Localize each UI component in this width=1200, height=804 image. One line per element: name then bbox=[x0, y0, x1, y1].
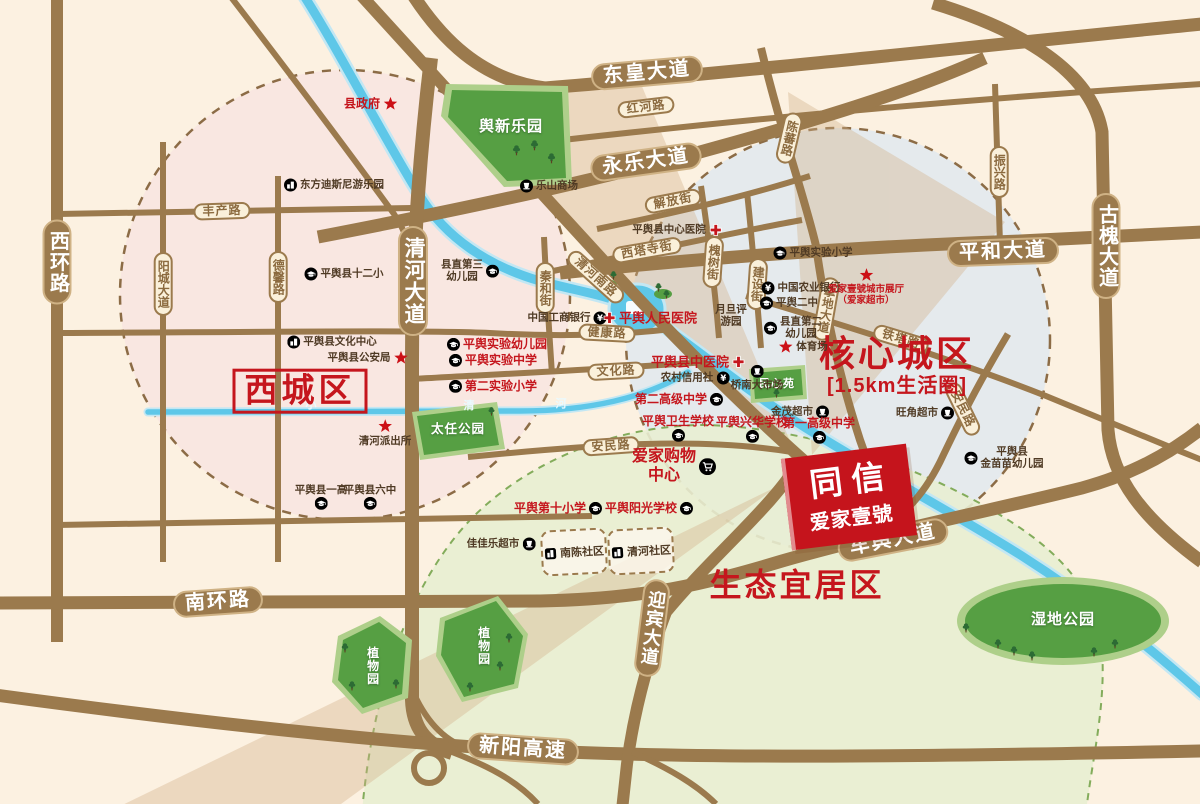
poi-label: 县政府 bbox=[344, 97, 380, 111]
park-label: 植物园 bbox=[365, 647, 378, 686]
map-poi: 平舆兴华学校 bbox=[716, 415, 788, 443]
district-subtitle: [1.5km生活圈] bbox=[819, 376, 975, 397]
road-label-minor: 振兴路 bbox=[990, 146, 1009, 198]
poi-label: 平舆二中 bbox=[776, 297, 818, 309]
project-block: 同信 爱家壹號 bbox=[781, 444, 917, 551]
home-icon bbox=[611, 545, 625, 559]
map-poi: 县政府 bbox=[344, 97, 398, 112]
map-poi: 平舆县中心医院 bbox=[632, 224, 722, 237]
district-label: 核心城区[1.5km生活圈] bbox=[819, 335, 975, 397]
map-base-layer: ¥ bbox=[0, 0, 1200, 804]
road-label-minor: 秦和街 bbox=[536, 262, 555, 314]
poi-label: 平舆县六中 bbox=[344, 484, 397, 496]
map-poi: 平舆人民医院 bbox=[603, 310, 697, 325]
map-poi: 县直第三 幼儿园 bbox=[441, 259, 499, 284]
poi-label: 平舆县中心医院 bbox=[632, 224, 706, 236]
map-poi: 第二高级中学 bbox=[635, 392, 723, 406]
star-icon bbox=[383, 97, 398, 112]
cup-icon bbox=[751, 365, 764, 378]
poi-label: 东方迪斯尼游乐园 bbox=[300, 179, 384, 191]
poi-label: 第二高级中学 bbox=[635, 392, 707, 406]
map-poi: 爱家壹號城市展厅 （爱家超市） bbox=[828, 268, 904, 306]
road-label-minor: 健康路 bbox=[578, 323, 636, 343]
park-label: 植物园 bbox=[476, 627, 489, 666]
poi-label: 爱家壹號城市展厅 （爱家超市） bbox=[828, 284, 904, 306]
map-poi: 农村信用社 bbox=[661, 372, 730, 385]
river-name-char: 清 bbox=[464, 397, 475, 413]
home-icon bbox=[544, 546, 558, 560]
map-poi: 月旦评 游园 bbox=[715, 304, 747, 329]
cap-icon bbox=[812, 431, 825, 444]
poi-label: 平舆县一高 bbox=[295, 484, 348, 496]
road-label-major: 西环路 bbox=[43, 220, 72, 305]
poi-label: 平舆实验中学 bbox=[465, 353, 537, 367]
cap-icon bbox=[710, 393, 723, 406]
poi-label: 爱家购物 中心 bbox=[632, 448, 696, 486]
cap-icon bbox=[774, 247, 787, 260]
map-poi: 第二实验小学 bbox=[449, 379, 537, 393]
map-poi: 平舆县一高 bbox=[295, 484, 348, 510]
community-label: 清河社区 bbox=[627, 541, 672, 559]
map-poi: 旺角超市 bbox=[896, 407, 954, 420]
cross-icon bbox=[603, 311, 616, 324]
map-poi: 佳佳乐超市 bbox=[467, 538, 536, 551]
cap-icon bbox=[745, 430, 758, 443]
poi-label: 体育场 bbox=[796, 341, 828, 353]
project-name-line2: 爱家壹號 bbox=[808, 496, 895, 535]
cap-icon bbox=[486, 265, 499, 278]
road-label-minor: 阳城大道 bbox=[154, 252, 173, 316]
poi-label: 平舆县十二小 bbox=[321, 268, 384, 280]
river-name-char: 河 bbox=[556, 395, 567, 411]
cap-icon bbox=[760, 297, 773, 310]
map-poi: 平舆县文化中心 bbox=[287, 336, 377, 349]
map-poi: 平舆县六中 bbox=[344, 484, 397, 510]
cap-icon bbox=[680, 502, 693, 515]
yuan-icon bbox=[762, 282, 775, 295]
poi-label: 中国工商银行 bbox=[528, 312, 591, 324]
star-icon bbox=[394, 351, 409, 366]
cap-icon bbox=[447, 338, 460, 351]
poi-label: 农村信用社 bbox=[661, 372, 714, 384]
cap-icon bbox=[764, 322, 777, 335]
map-poi: 东方迪斯尼游乐园 bbox=[284, 179, 384, 192]
cup-icon bbox=[941, 407, 954, 420]
bld-icon bbox=[284, 179, 297, 192]
map-poi: 平舆实验幼儿园 bbox=[447, 337, 547, 351]
poi-label: 平舆兴华学校 bbox=[716, 415, 788, 429]
map-poi: 平舆县十二小 bbox=[305, 268, 384, 281]
map-poi: 平舆县公安局 bbox=[328, 351, 409, 366]
poi-label: 第一高级中学 bbox=[783, 416, 855, 430]
map-poi: 爱家购物 中心 bbox=[632, 448, 716, 486]
map-poi: 平舆实验中学 bbox=[449, 353, 537, 367]
poi-label: 佳佳乐超市 bbox=[467, 538, 520, 550]
road-label-minor: 槐树街 bbox=[702, 235, 724, 288]
map-poi: 中国工商银行 bbox=[528, 312, 607, 325]
poi-label: 县直第二 幼儿园 bbox=[780, 316, 822, 341]
map-poi: 体育场 bbox=[778, 340, 828, 355]
map-poi: 平舆二中 bbox=[760, 297, 818, 310]
poi-label: 平舆县 金苗苗幼儿园 bbox=[981, 446, 1044, 471]
cup-icon bbox=[520, 180, 533, 193]
cross-icon bbox=[709, 224, 722, 237]
cup-icon bbox=[522, 538, 535, 551]
yuan-icon bbox=[716, 372, 729, 385]
bld-icon bbox=[287, 336, 300, 349]
road-label-major: 古槐大道 bbox=[1092, 193, 1121, 299]
cart-icon bbox=[699, 459, 716, 476]
poi-label: 平舆县公安局 bbox=[328, 352, 391, 364]
road-label-major: 清河大道 bbox=[398, 226, 428, 336]
district-name: 西城区 bbox=[233, 369, 368, 414]
park-label: 太任公园 bbox=[431, 423, 485, 437]
cap-icon bbox=[305, 268, 318, 281]
cap-icon bbox=[449, 354, 462, 367]
district-name: 生态宜居区 bbox=[709, 569, 884, 603]
road-label-minor: 德馨路 bbox=[269, 251, 288, 303]
poi-label: 清河派出所 bbox=[359, 435, 412, 447]
road-label-minor: 丰产路 bbox=[193, 202, 251, 221]
poi-label: 平舆实验幼儿园 bbox=[463, 337, 547, 351]
cap-icon bbox=[589, 502, 602, 515]
cross-icon bbox=[732, 355, 745, 368]
community-label: 南陈社区 bbox=[560, 542, 605, 560]
poi-label: 平舆县中医院 bbox=[651, 354, 729, 369]
community-box: 清河社区 bbox=[607, 526, 675, 575]
poi-label: 旺角超市 bbox=[896, 407, 938, 419]
map-poi: 平舆阳光学校 bbox=[605, 501, 693, 515]
poi-label: 县直第三 幼儿园 bbox=[441, 259, 483, 284]
cap-icon bbox=[449, 380, 462, 393]
star-icon bbox=[378, 419, 393, 434]
cap-icon bbox=[965, 452, 978, 465]
map-poi: 县直第二 幼儿园 bbox=[764, 316, 822, 341]
map-poi: 平舆第十小学 bbox=[514, 501, 602, 515]
road-label-major: 平和大道 bbox=[947, 237, 1060, 268]
poi-label: 月旦评 游园 bbox=[715, 304, 747, 329]
park-label: 湿地公园 bbox=[1031, 612, 1095, 629]
poi-label: 平舆人民医院 bbox=[619, 310, 697, 325]
community-box: 南陈社区 bbox=[540, 527, 608, 576]
cap-icon bbox=[364, 497, 377, 510]
poi-label: 桥南大市场 bbox=[731, 379, 784, 391]
cap-icon bbox=[315, 497, 328, 510]
poi-label: 乐山商场 bbox=[536, 180, 578, 192]
poi-label: 平舆县文化中心 bbox=[303, 336, 377, 348]
map-poi: 平舆实验小学 bbox=[774, 247, 853, 260]
district-label: 生态宜居区 bbox=[709, 569, 884, 603]
poi-label: 平舆实验小学 bbox=[790, 247, 853, 259]
map-poi: 乐山商场 bbox=[520, 180, 578, 193]
poi-label: 平舆第十小学 bbox=[514, 501, 586, 515]
road-donghuang bbox=[406, 0, 1200, 88]
star-icon bbox=[858, 268, 873, 283]
map-poi: 平舆卫生学校 bbox=[642, 414, 714, 442]
map-poi: 清河派出所 bbox=[359, 419, 412, 447]
location-map: ¥ bbox=[0, 0, 1200, 804]
map-poi: 第一高级中学 bbox=[783, 416, 855, 444]
cap-icon bbox=[671, 429, 684, 442]
poi-label: 平舆阳光学校 bbox=[605, 501, 677, 515]
district-label: 西城区 bbox=[233, 369, 368, 414]
road-label-minor: 文化路 bbox=[587, 361, 645, 381]
project-name-line1: 同信 bbox=[799, 458, 895, 502]
park-label: 舆新乐园 bbox=[479, 119, 543, 136]
map-poi: 平舆县中医院 bbox=[651, 354, 745, 369]
poi-label: 平舆卫生学校 bbox=[642, 414, 714, 428]
poi-label: 第二实验小学 bbox=[465, 379, 537, 393]
district-name: 核心城区 bbox=[819, 335, 975, 373]
star-icon bbox=[778, 340, 793, 355]
map-poi: 平舆县 金苗苗幼儿园 bbox=[965, 446, 1044, 471]
